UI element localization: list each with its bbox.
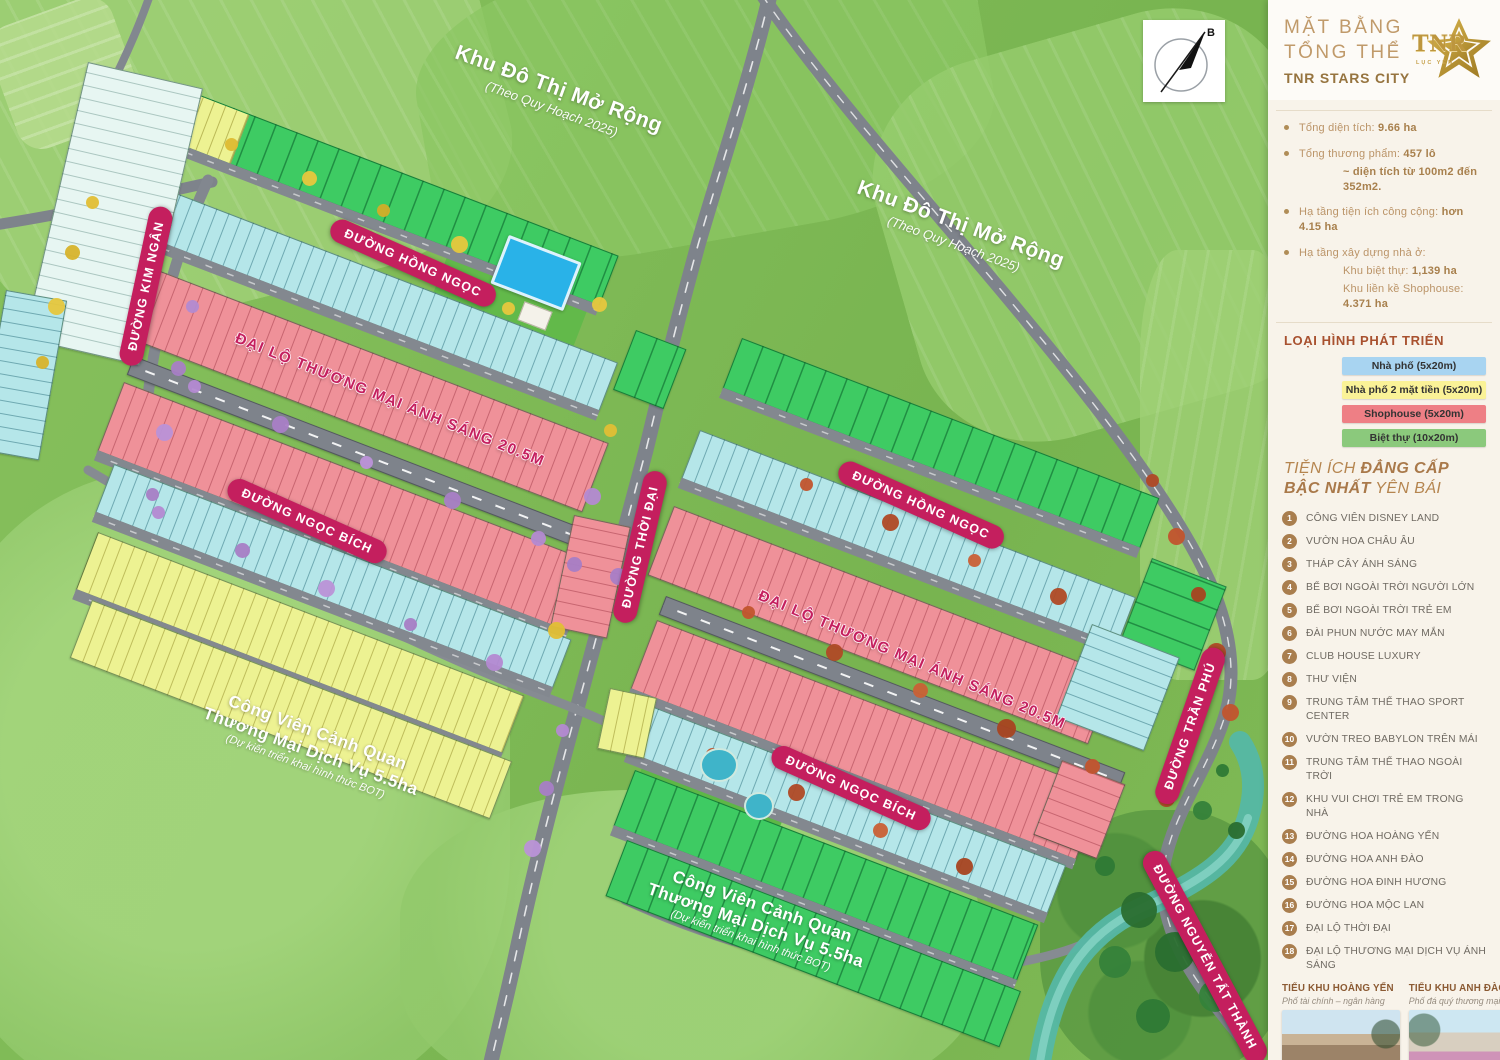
legend-list: Nhà phố (5x20m)Nhà phố 2 mặt tiền (5x20m… [1282, 357, 1488, 447]
amenity-label: THÁP CÂY ÁNH SÁNG [1306, 557, 1417, 572]
tnr-logo: TNR LỤC YÊN [1416, 16, 1490, 90]
stat-text: Hạ tầng tiện ích công cộng: hơn 4.15 ha [1299, 206, 1463, 233]
tree-cluster [800, 478, 813, 491]
amenity-item: 10VƯỜN TREO BABYLON TRÊN MÁI [1282, 732, 1488, 747]
subzone-title: TIỂU KHU ANH ĐÀO [1409, 983, 1500, 994]
amenity-item: 2VƯỜN HOA CHÂU ÂU [1282, 534, 1488, 549]
logo-subtext: LỤC YÊN [1416, 60, 1454, 66]
stat-item: Hạ tầng tiện ích công cộng: hơn 4.15 ha [1282, 205, 1488, 235]
amenity-number-badge: 16 [1282, 898, 1297, 913]
amenity-label: ĐẠI LỘ THỜI ĐẠI [1306, 921, 1391, 936]
subzone-card[interactable]: TIỂU KHU ANH ĐÀOPhố đá quý thương mại [1409, 983, 1500, 1060]
amenity-item: 1CÔNG VIÊN DISNEY LAND [1282, 511, 1488, 526]
tree-cluster [1095, 856, 1115, 876]
amenity-item: 7CLUB HOUSE LUXURY [1282, 649, 1488, 664]
amenity-item: 16ĐƯỜNG HOA MỘC LAN [1282, 898, 1488, 913]
pond [744, 792, 774, 820]
legend-item: Nhà phố 2 mặt tiền (5x20m) [1342, 381, 1486, 399]
amenity-item: 17ĐẠI LỘ THỜI ĐẠI [1282, 921, 1488, 936]
legend-item: Shophouse (5x20m) [1342, 405, 1486, 423]
amenity-label: ĐƯỜNG HOA MỘC LAN [1306, 898, 1424, 913]
amenity-number-badge: 13 [1282, 829, 1297, 844]
stat-text: Tổng diện tích: 9.66 ha [1299, 122, 1417, 134]
stat-item: Tổng thương phẩm: 457 lô~ diện tích từ 1… [1282, 147, 1488, 195]
stat-text: Hạ tầng xây dựng nhà ở: [1299, 247, 1426, 259]
master-plan-poster: Khu Đô Thị Mở Rộng(Theo Quy Hoạch 2025)K… [0, 0, 1500, 1060]
tree-cluster [556, 724, 569, 737]
amenity-number-badge: 2 [1282, 534, 1297, 549]
amenities-title: TIỆN ÍCH ĐẲNG CẤPBẬC NHẤT YÊN BÁI [1284, 459, 1488, 499]
amenity-item: 8THƯ VIỆN [1282, 672, 1488, 687]
tree-cluster [604, 424, 617, 437]
amenity-label: ĐƯỜNG HOA ĐINH HƯƠNG [1306, 875, 1447, 890]
amenity-number-badge: 8 [1282, 672, 1297, 687]
amenity-item: 13ĐƯỜNG HOA HOÀNG YẾN [1282, 829, 1488, 844]
legend-title: LOẠI HÌNH PHÁT TRIỂN [1284, 333, 1488, 348]
amenity-number-badge: 17 [1282, 921, 1297, 936]
plan-title-line1: MẶT BẰNG [1284, 16, 1410, 41]
amenity-item: 18ĐẠI LỘ THƯƠNG MẠI DỊCH VỤ ÁNH SÁNG [1282, 944, 1488, 973]
stat-subline: ~ diện tích từ 100m2 đến 352m2. [1299, 165, 1488, 195]
amenity-label: THƯ VIỆN [1306, 672, 1357, 687]
amenity-label: BỂ BƠI NGOÀI TRỜI TRẺ EM [1306, 603, 1452, 618]
amenity-label: CÔNG VIÊN DISNEY LAND [1306, 511, 1439, 526]
amenity-number-badge: 6 [1282, 626, 1297, 641]
stat-text: Tổng thương phẩm: 457 lô [1299, 148, 1436, 160]
amenity-number-badge: 7 [1282, 649, 1297, 664]
amenity-label: TRUNG TÂM THỂ THAO SPORT CENTER [1306, 695, 1488, 724]
amenity-item: 3THÁP CÂY ÁNH SÁNG [1282, 557, 1488, 572]
compass: B [1143, 20, 1225, 102]
amenity-item: 15ĐƯỜNG HOA ĐINH HƯƠNG [1282, 875, 1488, 890]
amenity-item: 11TRUNG TÂM THỂ THAO NGOÀI TRỜI [1282, 755, 1488, 784]
bullet-icon [1284, 151, 1289, 156]
divider [1276, 110, 1492, 111]
tree-cluster [1146, 474, 1159, 487]
project-name: TNR STARS CITY [1284, 70, 1410, 86]
stat-subline: Khu liền kề Shophouse: 4.371 ha [1299, 282, 1488, 312]
panel-header: MẶT BẰNG TỔNG THỂ TNR STARS CITY TNR LỤC… [1268, 0, 1500, 100]
stat-item: Tổng diện tích: 9.66 ha [1282, 121, 1488, 136]
subzone-photo [1409, 1010, 1500, 1060]
amenity-number-badge: 11 [1282, 755, 1297, 770]
amenity-number-badge: 1 [1282, 511, 1297, 526]
bullet-icon [1284, 250, 1289, 255]
amenity-number-badge: 10 [1282, 732, 1297, 747]
amenity-item: 14ĐƯỜNG HOA ANH ĐÀO [1282, 852, 1488, 867]
amenity-label: CLUB HOUSE LUXURY [1306, 649, 1421, 664]
bullet-icon [1284, 125, 1289, 130]
amenity-label: ĐẠI LỘ THƯƠNG MẠI DỊCH VỤ ÁNH SÁNG [1306, 944, 1488, 973]
amenity-label: ĐƯỜNG HOA ANH ĐÀO [1306, 852, 1424, 867]
amenity-label: TRUNG TÂM THỂ THAO NGOÀI TRỜI [1306, 755, 1488, 784]
tree-cluster [152, 506, 165, 519]
amenity-number-badge: 5 [1282, 603, 1297, 618]
amenity-item: 6ĐÀI PHUN NƯỚC MAY MẮN [1282, 626, 1488, 641]
amenity-label: KHU VUI CHƠI TRẺ EM TRONG NHÀ [1306, 792, 1488, 821]
amenity-item: 12KHU VUI CHƠI TRẺ EM TRONG NHÀ [1282, 792, 1488, 821]
subzone-subtitle: Phố đá quý thương mại [1409, 996, 1500, 1006]
amenity-label: ĐÀI PHUN NƯỚC MAY MẮN [1306, 626, 1445, 641]
amenity-item: 5BỂ BƠI NGOÀI TRỜI TRẺ EM [1282, 603, 1488, 618]
legend-item: Biệt thự (10x20m) [1342, 429, 1486, 447]
amenity-number-badge: 4 [1282, 580, 1297, 595]
tree-cluster [86, 196, 99, 209]
amenities-list: 1CÔNG VIÊN DISNEY LAND2VƯỜN HOA CHÂU ÂU3… [1282, 511, 1488, 973]
tree-cluster [742, 606, 755, 619]
logo-text: TNR [1412, 30, 1468, 58]
subzone-card[interactable]: TIỂU KHU HOÀNG YẾNPhố tài chính – ngân h… [1282, 983, 1400, 1060]
bullet-icon [1284, 209, 1289, 214]
tree-cluster [186, 300, 199, 313]
amenity-number-badge: 9 [1282, 695, 1297, 710]
amenity-number-badge: 18 [1282, 944, 1297, 959]
tree-cluster [1216, 764, 1229, 777]
amenity-item: 4BỂ BƠI NGOÀI TRỜI NGƯỜI LỚN [1282, 580, 1488, 595]
subzone-photo [1282, 1010, 1400, 1060]
amenity-item: 9TRUNG TÂM THỂ THAO SPORT CENTER [1282, 695, 1488, 724]
info-panel: MẶT BẰNG TỔNG THỂ TNR STARS CITY TNR LỤC… [1268, 0, 1500, 1060]
stat-item: Hạ tầng xây dựng nhà ở: Khu biệt thự: 1,… [1282, 246, 1488, 311]
tree-cluster [188, 380, 201, 393]
amenity-number-badge: 3 [1282, 557, 1297, 572]
stats-list: Tổng diện tích: 9.66 haTổng thương phẩm:… [1282, 121, 1488, 311]
amenity-number-badge: 12 [1282, 792, 1297, 807]
pond [700, 748, 738, 782]
subzones-grid: TIỂU KHU HOÀNG YẾNPhố tài chính – ngân h… [1282, 983, 1488, 1060]
amenity-label: BỂ BƠI NGOÀI TRỜI NGƯỜI LỚN [1306, 580, 1474, 595]
tree-cluster [225, 138, 238, 151]
legend-item: Nhà phố (5x20m) [1342, 357, 1486, 375]
stat-subline: Khu biệt thự: 1,139 ha [1299, 264, 1488, 279]
svg-text:B: B [1207, 27, 1215, 39]
amenity-label: ĐƯỜNG HOA HOÀNG YẾN [1306, 829, 1439, 844]
amenity-label: VƯỜN HOA CHÂU ÂU [1306, 534, 1415, 549]
plan-title-line2: TỔNG THỂ [1284, 41, 1410, 66]
subzone-title: TIỂU KHU HOÀNG YẾN [1282, 983, 1400, 994]
amenity-number-badge: 14 [1282, 852, 1297, 867]
divider [1276, 322, 1492, 323]
amenity-number-badge: 15 [1282, 875, 1297, 890]
amenity-label: VƯỜN TREO BABYLON TRÊN MÁI [1306, 732, 1478, 747]
subzone-subtitle: Phố tài chính – ngân hàng [1282, 996, 1400, 1006]
